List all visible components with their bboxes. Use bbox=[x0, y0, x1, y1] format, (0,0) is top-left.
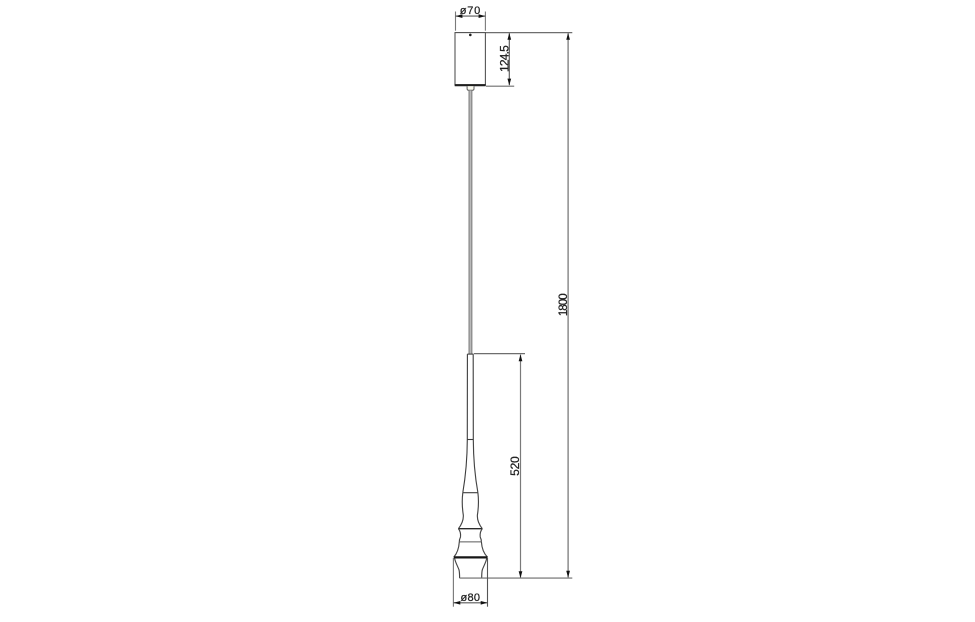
svg-text:ø80: ø80 bbox=[460, 592, 480, 604]
svg-text:1800: 1800 bbox=[558, 294, 570, 316]
svg-text:520: 520 bbox=[508, 456, 522, 476]
svg-text:124.5: 124.5 bbox=[497, 45, 511, 72]
svg-text:ø70: ø70 bbox=[460, 5, 481, 17]
